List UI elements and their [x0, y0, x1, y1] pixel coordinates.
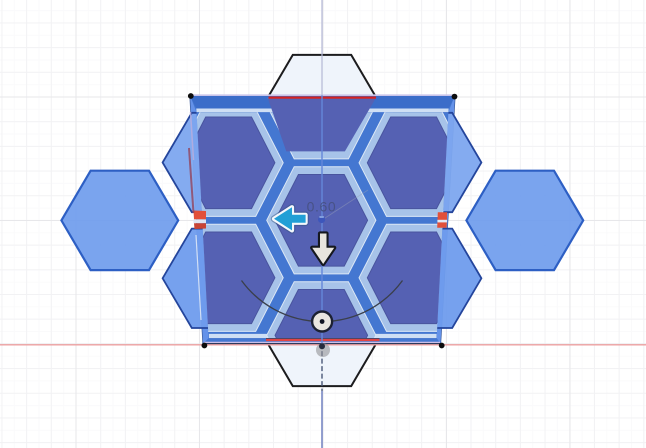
svg-text:0.60: 0.60 [307, 199, 337, 215]
